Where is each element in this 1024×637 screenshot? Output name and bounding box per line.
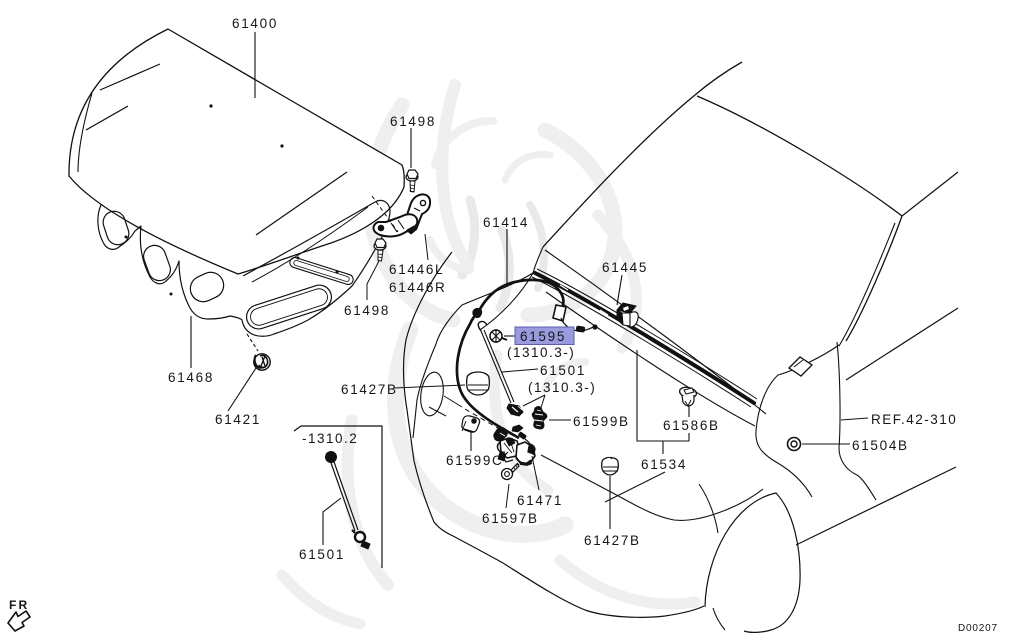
svg-text:61427B: 61427B	[584, 533, 641, 548]
svg-text:-1310.2: -1310.2	[302, 431, 358, 446]
svg-text:61414: 61414	[483, 215, 529, 230]
svg-text:FR: FR	[9, 598, 29, 612]
svg-text:61501: 61501	[540, 363, 586, 378]
svg-text:61446R: 61446R	[389, 280, 447, 295]
svg-text:61504B: 61504B	[852, 438, 909, 453]
svg-text:61597B: 61597B	[482, 511, 539, 526]
svg-text:(1310.3-): (1310.3-)	[528, 380, 596, 395]
svg-text:61400: 61400	[232, 16, 278, 31]
svg-text:61427B: 61427B	[341, 382, 398, 397]
svg-text:61534: 61534	[641, 457, 687, 472]
svg-text:61599C: 61599C	[446, 453, 504, 468]
svg-text:REF.42-310: REF.42-310	[871, 412, 957, 427]
svg-text:61421: 61421	[215, 412, 261, 427]
svg-text:61599B: 61599B	[573, 414, 630, 429]
svg-text:61445: 61445	[602, 260, 648, 275]
svg-text:61586B: 61586B	[663, 418, 720, 433]
svg-text:61468: 61468	[168, 370, 214, 385]
svg-text:61501: 61501	[299, 547, 345, 562]
svg-text:61498: 61498	[344, 303, 390, 318]
svg-text:61498: 61498	[390, 114, 436, 129]
svg-text:D00207: D00207	[958, 623, 998, 634]
svg-text:61471: 61471	[517, 493, 563, 508]
svg-text:61595: 61595	[520, 329, 566, 344]
svg-text:(1310.3-): (1310.3-)	[507, 345, 575, 360]
